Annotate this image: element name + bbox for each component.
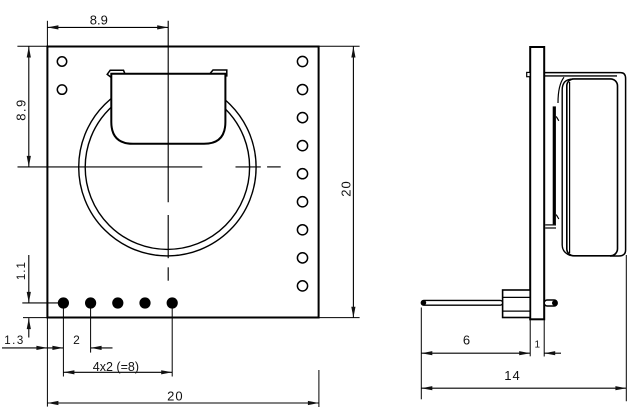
svg-text:1: 1: [535, 340, 541, 351]
svg-text:8.9: 8.9: [90, 13, 108, 28]
svg-text:20: 20: [167, 389, 183, 404]
svg-text:4x2 (=8): 4x2 (=8): [93, 360, 139, 374]
svg-text:1.1: 1.1: [16, 261, 28, 280]
svg-text:8.9: 8.9: [14, 98, 29, 121]
svg-text:2: 2: [73, 333, 80, 347]
svg-text:20: 20: [338, 180, 353, 196]
svg-text:14: 14: [504, 368, 520, 383]
svg-text:1.3: 1.3: [4, 335, 25, 347]
svg-text:6: 6: [463, 333, 470, 348]
